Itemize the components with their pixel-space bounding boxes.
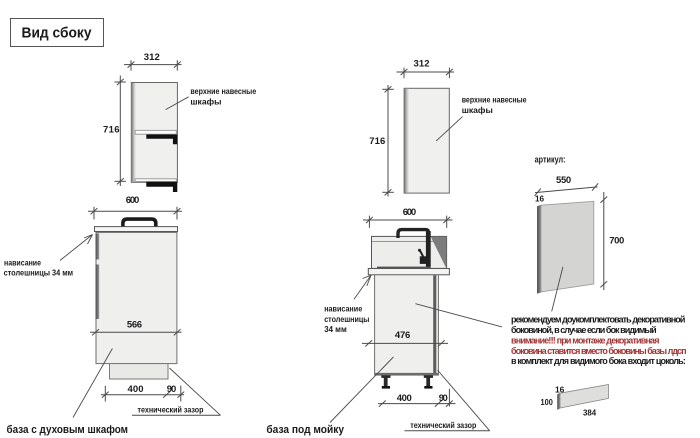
svg-text:верхние навесные: верхние навесные: [462, 95, 527, 105]
svg-text:Вид сбоку: Вид сбоку: [22, 25, 93, 42]
svg-text:в комплект для видимого бока в: в комплект для видимого бока входит цоко…: [511, 356, 686, 366]
svg-text:16: 16: [535, 194, 545, 203]
svg-text:600: 600: [403, 207, 417, 218]
svg-text:566: 566: [127, 320, 142, 331]
svg-text:столешницы: столешницы: [324, 314, 369, 324]
svg-text:312: 312: [144, 52, 160, 63]
svg-text:база с духовым шкафом: база с духовым шкафом: [7, 424, 129, 436]
svg-text:столешницы 34 мм: столешницы 34 мм: [4, 268, 74, 278]
svg-text:100: 100: [541, 397, 553, 407]
svg-text:700: 700: [609, 236, 624, 247]
svg-text:312: 312: [414, 59, 430, 70]
svg-text:рекомендуем доукомплектовать д: рекомендуем доукомплектовать декоративно…: [511, 315, 685, 325]
svg-text:шкафы: шкафы: [462, 105, 493, 115]
svg-text:716: 716: [103, 125, 120, 136]
svg-text:34 мм: 34 мм: [324, 324, 347, 334]
svg-text:база под мойку: база под мойку: [266, 424, 344, 436]
svg-text:технический зазор: технический зазор: [410, 421, 476, 430]
svg-text:верхние навесные: верхние навесные: [190, 86, 256, 96]
svg-text:550: 550: [556, 175, 571, 186]
svg-text:технический зазор: технический зазор: [138, 406, 204, 415]
svg-text:нависание: нависание: [4, 258, 41, 268]
svg-text:боковина ставится вместо боков: боковина ставится вместо боковины базы л…: [511, 346, 687, 356]
svg-text:384: 384: [583, 408, 596, 418]
svg-text:боковиной, в случае если бок в: боковиной, в случае если бок видимый: [511, 325, 657, 335]
svg-text:артикул:: артикул:: [535, 154, 566, 164]
svg-text:нависание: нависание: [324, 304, 362, 314]
svg-text:476: 476: [395, 330, 410, 341]
svg-text:716: 716: [369, 136, 385, 147]
svg-text:90: 90: [439, 393, 448, 404]
svg-text:400: 400: [128, 384, 144, 395]
svg-text:600: 600: [126, 195, 140, 206]
svg-text:внимание!!! при монтаже декора: внимание!!! при монтаже декоративная: [511, 335, 660, 345]
svg-text:400: 400: [397, 393, 412, 404]
svg-text:90: 90: [167, 384, 177, 395]
svg-text:шкафы: шкафы: [190, 96, 221, 106]
